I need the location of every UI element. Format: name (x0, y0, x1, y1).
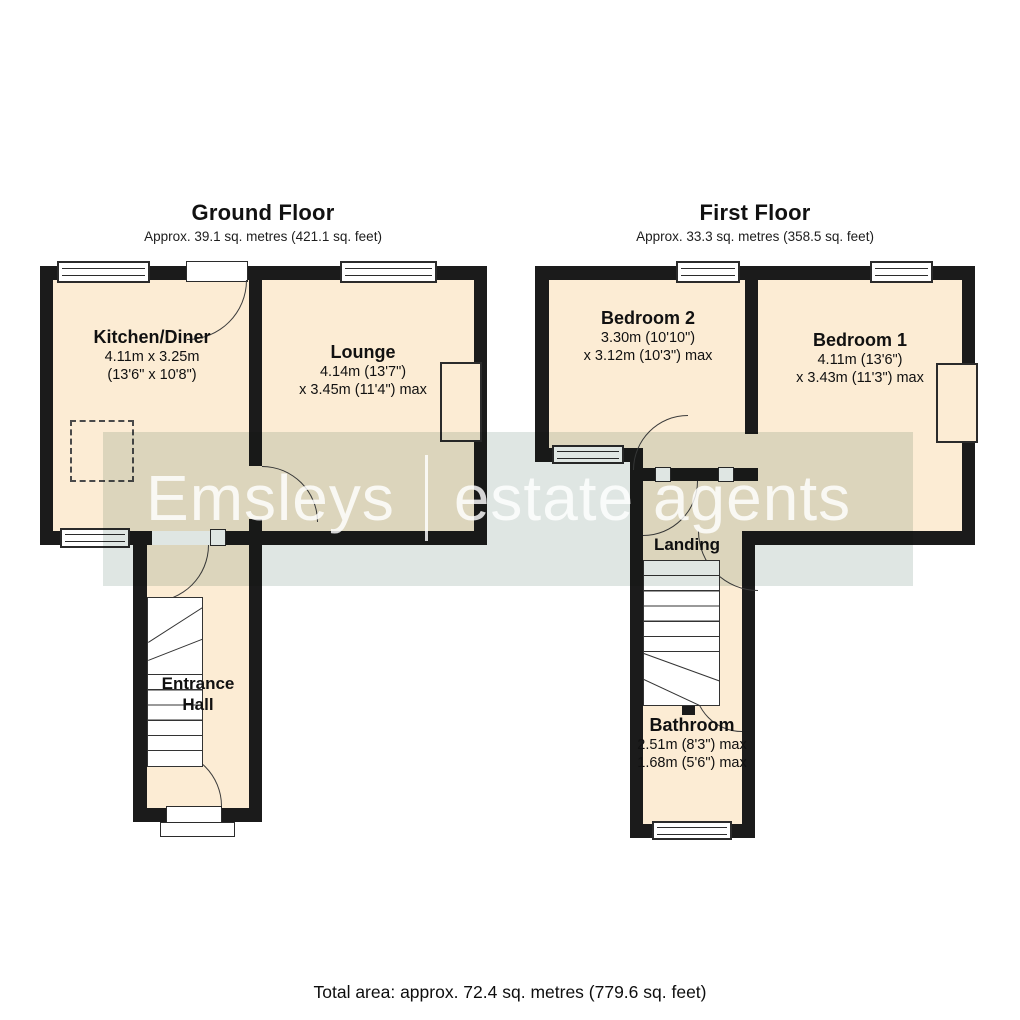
room-dim: (13'6" x 10'8") (93, 367, 210, 385)
room-dim: x 3.43m (11'3") max (796, 370, 924, 388)
room-dim: 2.51m (8'3") max (637, 737, 746, 755)
room-dim: 4.11m (13'6") (796, 352, 924, 370)
room-name: Bedroom 1 (796, 330, 924, 352)
room-name: Lounge (299, 342, 427, 364)
window (57, 261, 150, 283)
room-dim: 3.30m (10'10") (584, 330, 713, 348)
watermark: Emsleys estate agents (146, 455, 906, 541)
room-dim: 4.11m x 3.25m (93, 349, 210, 367)
total-area-text: Total area: approx. 72.4 sq. metres (779… (0, 982, 1020, 1003)
wall-segment (249, 545, 262, 822)
room-label-bedroom1: Bedroom 1 4.11m (13'6") x 3.43m (11'3") … (796, 330, 924, 387)
watermark-tagline: estate agents (454, 461, 851, 535)
ground-floor-area: Approx. 39.1 sq. metres (421.1 sq. feet) (144, 229, 382, 244)
watermark-divider (425, 455, 428, 541)
room-name: Entrance Hall (148, 674, 248, 715)
floorplan-canvas: Ground Floor Approx. 39.1 sq. metres (42… (0, 0, 1020, 1020)
room-label-entrance-hall: Entrance Hall (148, 674, 248, 715)
window (652, 821, 732, 840)
watermark-brand: Emsleys (146, 461, 395, 535)
room-label-lounge: Lounge 4.14m (13'7") x 3.45m (11'4") max (299, 342, 427, 399)
room-dim: 4.14m (13'7") (299, 364, 427, 382)
room-dim: x 3.45m (11'4") max (299, 382, 427, 400)
first-floor-title: First Floor (700, 200, 811, 226)
ground-floor-title: Ground Floor (192, 200, 335, 226)
room-label-bedroom2: Bedroom 2 3.30m (10'10") x 3.12m (10'3")… (584, 308, 713, 365)
window (870, 261, 933, 283)
door-leaf (186, 261, 248, 282)
room-label-kitchen: Kitchen/Diner 4.11m x 3.25m (13'6" x 10'… (93, 327, 210, 384)
chimney-recess (936, 363, 978, 443)
wall-segment (745, 266, 758, 434)
room-name: Bedroom 2 (584, 308, 713, 330)
front-door-leaf (166, 806, 222, 823)
room-name: Kitchen/Diner (93, 327, 210, 349)
first-floor-area: Approx. 33.3 sq. metres (358.5 sq. feet) (636, 229, 874, 244)
window (340, 261, 437, 283)
chimney-recess (440, 362, 482, 442)
room-name: Bathroom (637, 715, 746, 737)
window (676, 261, 740, 283)
porch-step (160, 822, 235, 837)
wall-segment (40, 266, 53, 545)
room-dim: x 3.12m (10'3") max (584, 348, 713, 366)
room-dim: 1.68m (5'6") max (637, 755, 746, 773)
room-label-bathroom: Bathroom 2.51m (8'3") max 1.68m (5'6") m… (637, 715, 746, 772)
